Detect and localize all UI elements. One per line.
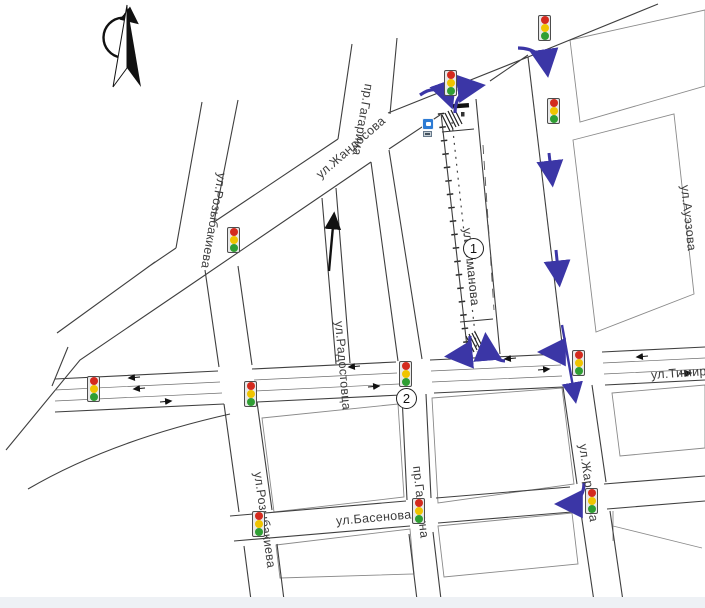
block-below-basenova-mid — [438, 513, 578, 577]
traffic-light-icon — [547, 98, 560, 124]
traffic-light-icon — [399, 361, 412, 387]
traffic-light-icon — [444, 70, 457, 96]
direction-arrow-radostovtsa — [329, 215, 334, 271]
block-rozybakieva-gagarina — [262, 404, 404, 512]
sign-plate — [422, 118, 434, 130]
detour-arrow-zharokova-to-basenova — [562, 483, 584, 504]
road-curve-southwest — [28, 414, 230, 489]
traffic-light-icon — [227, 227, 240, 253]
timiryazeva-lane-lines — [55, 358, 705, 401]
traffic-detour-scheme-map: ул.Жандосова ул.Розыбакиева ул.Розыбакие… — [0, 0, 705, 608]
traffic-light-icon — [87, 376, 100, 402]
sign-tag — [423, 131, 432, 137]
bottom-border-band — [0, 597, 705, 608]
traffic-light-icon — [244, 381, 257, 407]
traffic-light-icon — [252, 511, 265, 537]
block-east-of-zharokova — [612, 385, 705, 456]
city-blocks — [262, 10, 705, 578]
block-below-basenova-west — [276, 529, 414, 578]
detour-arrow-south-1 — [549, 153, 552, 180]
compass-north-icon — [104, 5, 141, 87]
traffic-light-icon — [538, 15, 551, 41]
detour-arrow-south-2 — [556, 250, 559, 280]
road-timiryazeva — [52, 347, 705, 412]
block-lines-southeast — [613, 511, 702, 548]
detour-intersection-marker-2: 2 — [396, 388, 417, 409]
traffic-light-icon — [585, 488, 598, 514]
bus-stop-sign-icon — [422, 118, 434, 137]
detour-arrow-up-into-aimanova — [486, 340, 505, 361]
traffic-light-icon — [412, 498, 425, 524]
detour-arrow-out-to-zhandosova — [455, 86, 478, 113]
block-gagarina-zharokova — [432, 388, 574, 503]
small-road-mark — [461, 112, 465, 117]
road-gagarina-middle — [371, 150, 422, 361]
block-northeast — [570, 10, 705, 122]
block-east-auezova — [573, 114, 694, 332]
closed-section-marker-1: 1 — [463, 238, 484, 259]
traffic-light-icon — [572, 350, 585, 376]
